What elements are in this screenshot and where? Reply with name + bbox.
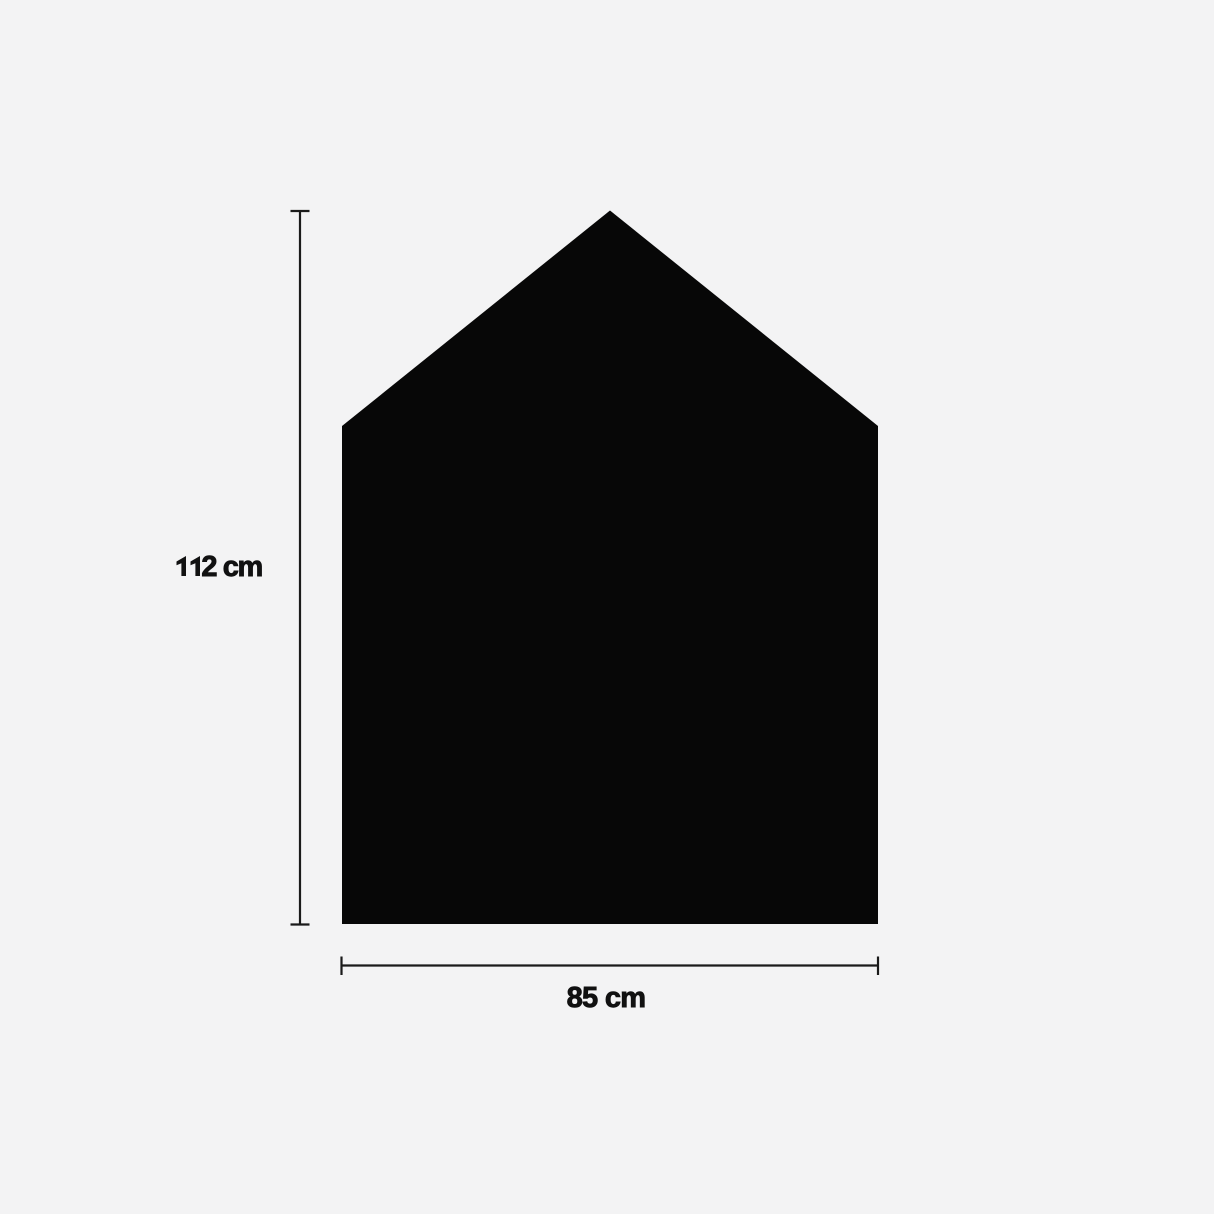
svg-text:85 cm: 85 cm bbox=[567, 982, 646, 1014]
svg-text:2 cm: 2 cm bbox=[201, 551, 262, 583]
